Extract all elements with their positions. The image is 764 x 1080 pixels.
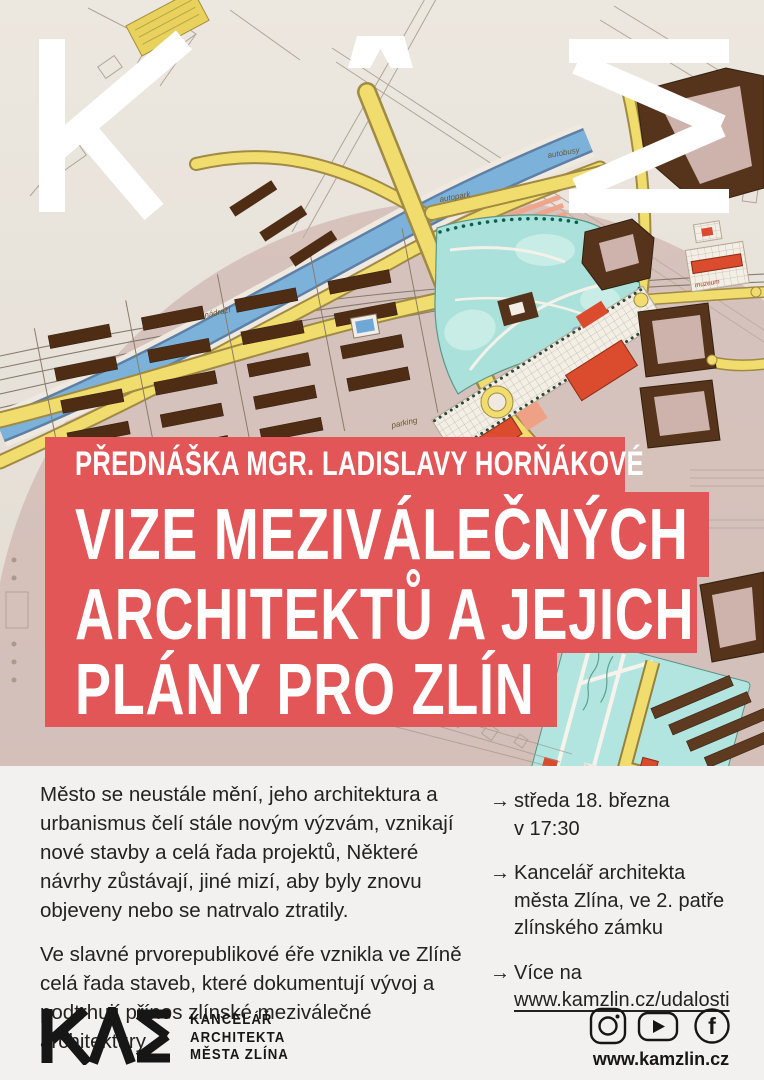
event-date: středa 18. března [514, 788, 670, 816]
youtube-icon[interactable] [639, 1013, 677, 1040]
org-line-2: ARCHITEKTA [190, 1029, 289, 1047]
logo-letter-k [47, 1009, 88, 1063]
kam-logo [40, 1007, 172, 1065]
banner-title-row-2: ARCHITEKTŮ A JEJICH [45, 577, 697, 653]
arrow-icon: → [490, 860, 514, 943]
website-url[interactable]: www.kamzlin.cz [588, 1049, 734, 1070]
lecture-eyebrow-text: PŘEDNÁŠKA MGR. LADISLAVY HORŇÁKOVÉ [75, 445, 644, 484]
banner-title-row-1: VIZE MEZIVÁLEČNÝCH [45, 492, 709, 577]
poster-title-line-3: PLÁNY PRO ZLÍN [75, 649, 535, 731]
social-icons: f [588, 1006, 734, 1046]
banner-title-row-3: PLÁNY PRO ZLÍN [45, 653, 557, 727]
venue-line-1: Kancelář architekta [514, 860, 724, 888]
org-line-3: MĚSTA ZLÍNA [190, 1046, 289, 1064]
detail-item-venue: → Kancelář architekta města Zlína, ve 2.… [490, 860, 750, 943]
venue-line-3: zlínského zámku [514, 915, 724, 943]
banner-eyebrow: PŘEDNÁŠKA MGR. LADISLAVY HORŇÁKOVÉ [45, 437, 625, 492]
body-paragraph-1: Město se neustále mění, jeho architektur… [40, 780, 485, 925]
venue-line-2: města Zlína, ve 2. patře [514, 888, 724, 916]
facebook-icon[interactable]: f [696, 1010, 729, 1043]
more-info-label: Více na [514, 960, 730, 988]
detail-item-date: → středa 18. března v 17:30 [490, 788, 750, 843]
instagram-icon[interactable] [591, 1009, 625, 1043]
org-line-1: KANCELÁŘ [190, 1011, 289, 1029]
hero-map-section: muzeum [0, 0, 764, 766]
event-details-column: → středa 18. března v 17:30 → Kancelář a… [490, 788, 750, 1032]
event-time: v 17:30 [514, 816, 670, 844]
logo-letter-a [93, 1011, 131, 1063]
event-poster: muzeum [0, 0, 764, 1080]
poster-title-line-2: ARCHITEKTŮ A JEJICH [75, 574, 694, 656]
logo-letter-m [137, 1014, 170, 1058]
arrow-icon: → [490, 788, 514, 843]
arrow-icon: → [490, 960, 514, 1015]
org-wordmark: KANCELÁŘ ARCHITEKTA MĚSTA ZLÍNA [190, 1011, 302, 1064]
poster-title-line-1: VIZE MEZIVÁLEČNÝCH [75, 494, 689, 576]
svg-text:f: f [708, 1013, 716, 1039]
